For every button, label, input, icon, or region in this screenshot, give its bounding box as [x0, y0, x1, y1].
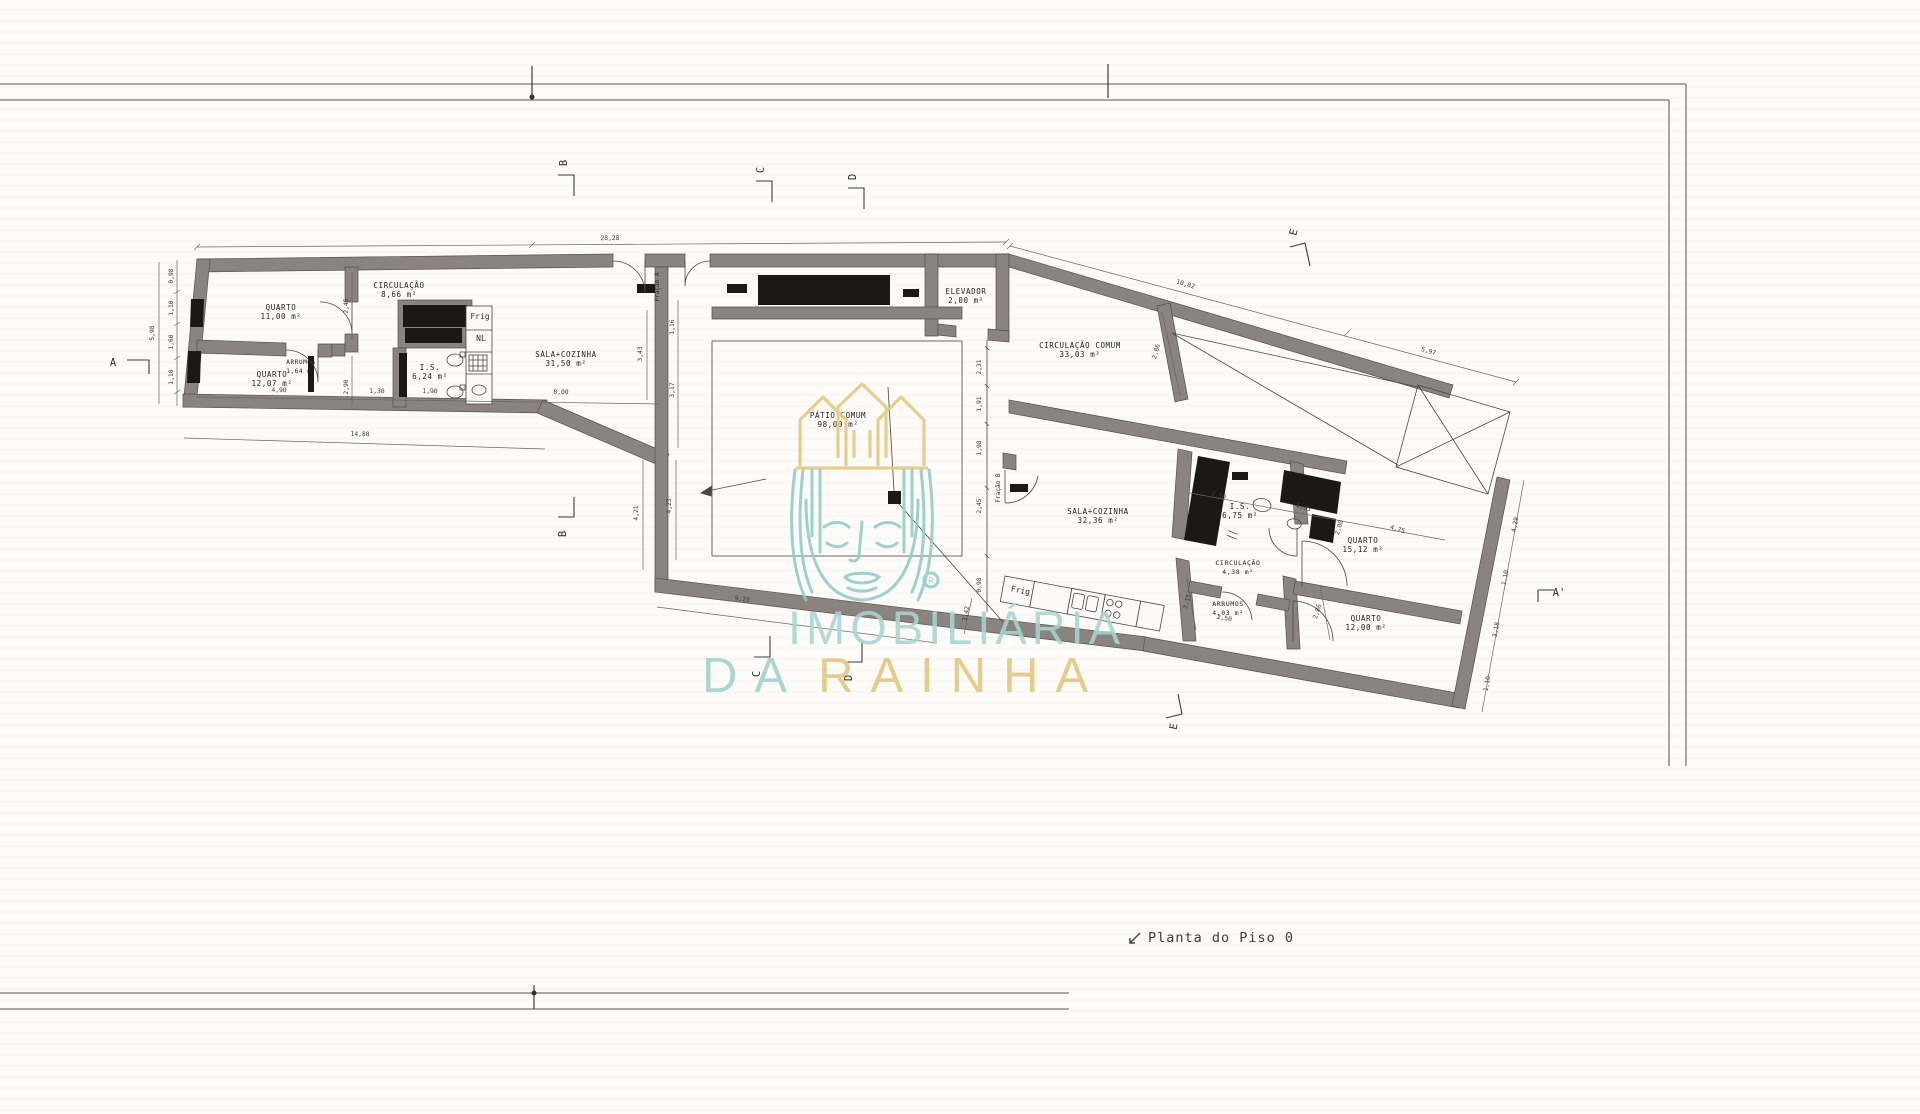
- section-marker-d: D: [847, 174, 859, 180]
- dim-label: 3,18: [1492, 621, 1502, 637]
- fixture-label: Frig: [470, 312, 489, 321]
- dim-label: 1,10: [168, 300, 175, 315]
- section-marker-a': A': [1553, 587, 1566, 599]
- fixture-label: Fração A: [654, 272, 661, 301]
- section-marker-d: D: [843, 675, 855, 681]
- room-label-circula-o: CIRCULAÇÃO4,38 m²: [1215, 558, 1260, 576]
- wardrobe: [405, 328, 462, 343]
- frame-ticks: [530, 64, 1108, 1009]
- section-marker-c: C: [751, 671, 763, 677]
- dim-label: 0,98: [976, 577, 983, 592]
- section-marker-c: C: [755, 167, 767, 173]
- dim-label: 2,45: [976, 498, 983, 513]
- wardrobe: [403, 305, 467, 327]
- section-marker-e: E: [1168, 722, 1181, 730]
- leader-line: [707, 479, 766, 491]
- dim-label: 5,98: [149, 325, 156, 340]
- door-tag: [1232, 472, 1248, 480]
- dim-label: 2,80: [1334, 519, 1345, 536]
- door-tag: [727, 284, 747, 293]
- door-tag: [1010, 484, 1028, 492]
- annotations: QUARTO11,00 m²QUARTO12,07 m²CIRCULAÇÃO8,…: [110, 160, 1565, 731]
- dim-label: 2,50: [1216, 614, 1232, 624]
- dim-label: 1,10: [168, 369, 175, 384]
- dim-label: 2,90: [343, 379, 350, 394]
- room-label-quarto: QUARTO11,00 m²: [261, 303, 302, 321]
- dim-label: 1,10: [1483, 675, 1493, 691]
- floor-plan-drawing: QUARTO11,00 m²QUARTO12,07 m²CIRCULAÇÃO8,…: [0, 0, 1920, 1114]
- room-label-sala-cozinha: SALA+COZINHA31,50 m²: [535, 350, 596, 368]
- dim-label: 5,97: [1420, 346, 1437, 357]
- section-marker-e: E: [1287, 228, 1300, 237]
- patio-drain: [888, 491, 901, 504]
- room-label-circula-o-comum: CIRCULAÇÃO COMUM33,03 m²: [1039, 341, 1121, 359]
- dim-label: 9,29: [734, 595, 750, 604]
- dim-label: 1,91: [976, 396, 983, 411]
- dim-label: 8,00: [553, 389, 568, 396]
- patio-outline: [712, 341, 962, 556]
- stair-block: [758, 275, 890, 305]
- leader-arrowhead: [701, 486, 712, 496]
- bathroom-fixtures-left: [447, 352, 465, 398]
- dim-label: 4,75: [1389, 524, 1406, 535]
- room-label-circula-o: CIRCULAÇÃO8,66 m²: [373, 281, 424, 299]
- dim-label: 1,60: [168, 334, 175, 349]
- dim-label: 1,98: [976, 440, 983, 455]
- dim-label: 3,17: [669, 382, 676, 397]
- dim-label: 2,86: [1151, 343, 1162, 360]
- room-label-elevador: ELEVADOR2,00 m²: [946, 287, 987, 305]
- cross-braced-box: [1396, 385, 1510, 494]
- door-tag: [903, 289, 919, 297]
- fixture-label: Fração B: [995, 473, 1002, 502]
- room-label-p-tio-comum: PÁTIO COMUM98,00 m²: [810, 411, 866, 429]
- scale-icon: [1128, 931, 1142, 945]
- dim-label: 14,88: [350, 431, 369, 439]
- dim-label: 4,23: [666, 498, 673, 513]
- dim-label: 1,10: [1501, 569, 1511, 585]
- section-marker-b: B: [558, 160, 570, 166]
- dim-label: 4,90: [271, 387, 286, 394]
- sheet-frame: [0, 84, 1686, 1009]
- section-marker-a: A: [110, 357, 117, 369]
- drawing-title-text: Planta do Piso 0: [1148, 930, 1294, 946]
- dim-label: 4,29: [1511, 516, 1521, 532]
- dim-label: 4,21: [633, 505, 640, 520]
- dim-label: 10,82: [1175, 279, 1195, 291]
- room-label-quarto: QUARTO12,00 m²: [1346, 614, 1387, 632]
- dim-label: 2,31: [976, 359, 983, 374]
- dim-label: 2,45: [343, 298, 350, 313]
- dim-label: 28,28: [600, 235, 619, 242]
- section-marker-b: B: [557, 531, 569, 537]
- dim-label: 1,90: [422, 388, 437, 395]
- dim-label: 3,43: [637, 346, 644, 361]
- room-label-i-s-: I.S.6,24 m²: [412, 363, 448, 381]
- fixture-label: NL: [476, 334, 486, 343]
- floor-plan-sheet: QUARTO11,00 m²QUARTO12,07 m²CIRCULAÇÃO8,…: [0, 0, 1920, 1114]
- drawing-title: Planta do Piso 0: [1128, 930, 1294, 946]
- room-label-quarto: QUARTO15,12 m²: [1343, 536, 1384, 554]
- dim-label: 2,86: [1312, 603, 1323, 620]
- dim-label: 1,30: [369, 388, 384, 395]
- room-label-sala-cozinha: SALA+COZINHA32,36 m²: [1067, 507, 1128, 525]
- dim-label: 0,98: [168, 268, 175, 283]
- dim-label: 1,16: [669, 319, 676, 334]
- door-tag: [637, 284, 655, 293]
